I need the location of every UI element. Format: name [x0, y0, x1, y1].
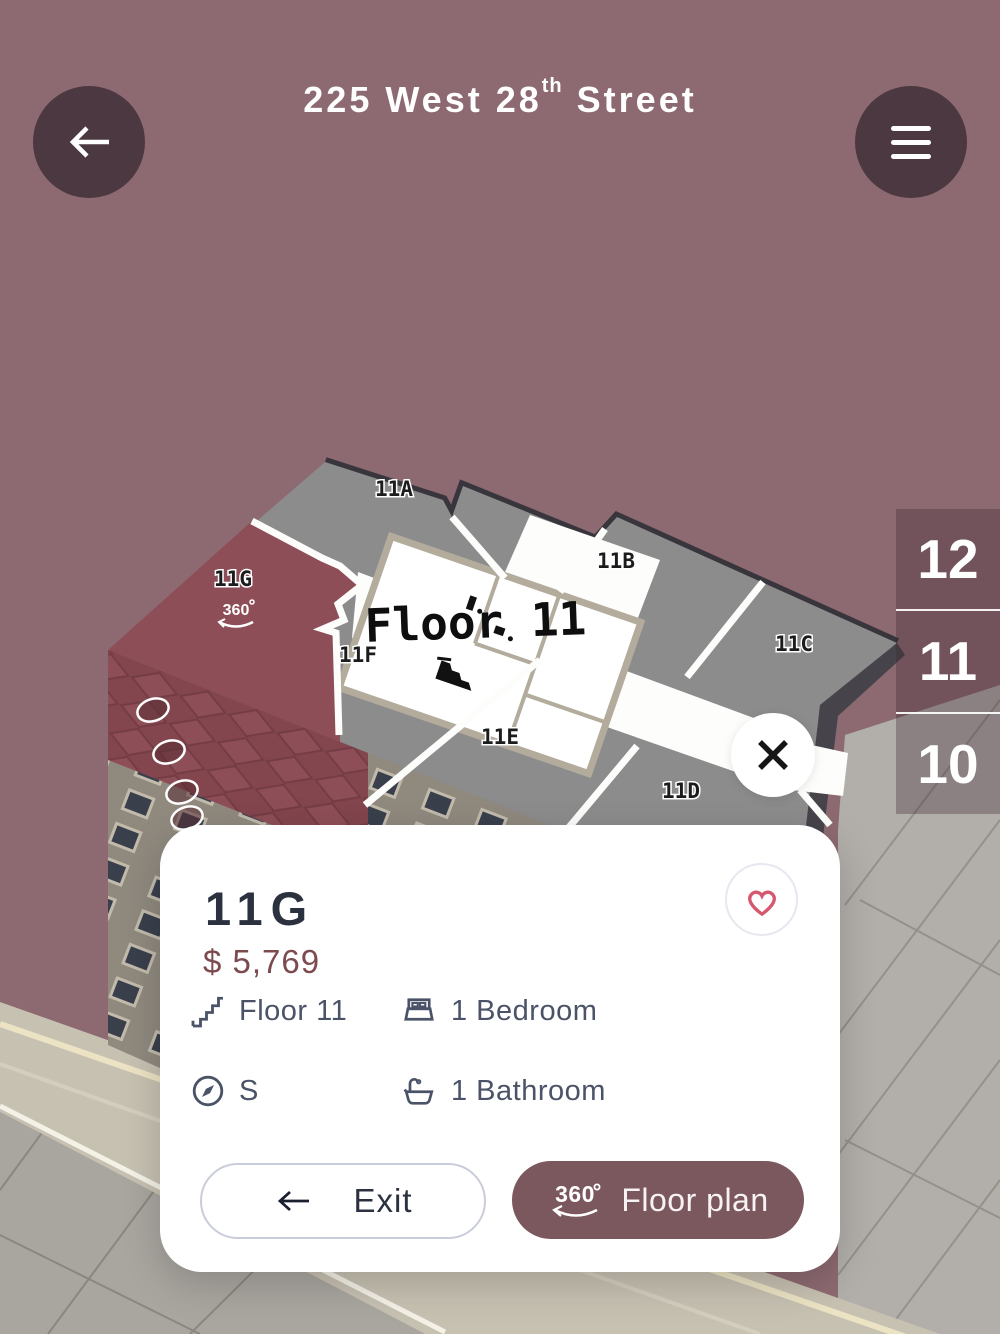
feature-bedroom: 1 Bedroom: [400, 993, 597, 1029]
feature-bedroom-label: 1 Bedroom: [451, 995, 597, 1028]
back-arrow-icon: [63, 121, 115, 163]
favorite-button[interactable]: [725, 863, 798, 936]
unit-label-11C[interactable]: 11C: [775, 632, 813, 656]
feature-orientation: S: [190, 1073, 259, 1109]
exit-label: Exit: [353, 1182, 412, 1220]
exit-arrow-icon: [273, 1187, 313, 1215]
hamburger-icon: [891, 126, 931, 159]
svg-text:360: 360: [555, 1181, 595, 1207]
unit-label-11G[interactable]: 11G: [214, 567, 252, 591]
unit-price: $ 5,769: [203, 943, 320, 981]
exit-button[interactable]: Exit: [200, 1163, 486, 1239]
floor-plan-title: Floor 11: [364, 591, 587, 653]
unit-detail-card: 11G $ 5,769 Floor 11: [160, 825, 840, 1272]
menu-button[interactable]: [855, 86, 967, 198]
unit-label-11D[interactable]: 11D: [662, 779, 700, 803]
svg-text:360: 360: [223, 602, 250, 619]
feature-floor-label: Floor 11: [239, 995, 347, 1028]
bed-icon: [400, 993, 438, 1029]
unit-label-11E[interactable]: 11E: [481, 725, 519, 749]
floor-selector-item-12[interactable]: 12: [896, 509, 1000, 609]
bath-icon: [400, 1073, 438, 1109]
unit-name: 11G: [205, 881, 315, 936]
heart-icon: [742, 881, 782, 919]
close-icon: [753, 735, 793, 775]
floor-selector: 12 11 10: [896, 509, 1000, 814]
stairs-icon: [190, 993, 226, 1029]
close-button[interactable]: [731, 713, 815, 797]
floor-selector-item-10[interactable]: 10: [896, 714, 1000, 814]
compass-icon: [190, 1073, 226, 1109]
unit-label-11A[interactable]: 11A: [375, 477, 413, 501]
floor-plan-label: Floor plan: [621, 1182, 768, 1219]
unit-label-11B[interactable]: 11B: [597, 549, 635, 573]
app-screen: 11A 11B 11C 11D 11E 11F 11G 360 Floor 11…: [0, 0, 1000, 1334]
back-button[interactable]: [33, 86, 145, 198]
feature-bathroom-label: 1 Bathroom: [451, 1075, 606, 1108]
feature-orientation-label: S: [239, 1075, 259, 1108]
floor-plan-button[interactable]: 360 Floor plan: [512, 1161, 804, 1239]
360-icon: 360: [547, 1176, 607, 1224]
feature-floor: Floor 11: [190, 993, 347, 1029]
feature-bathroom: 1 Bathroom: [400, 1073, 606, 1109]
floor-selector-item-11[interactable]: 11: [896, 611, 1000, 711]
